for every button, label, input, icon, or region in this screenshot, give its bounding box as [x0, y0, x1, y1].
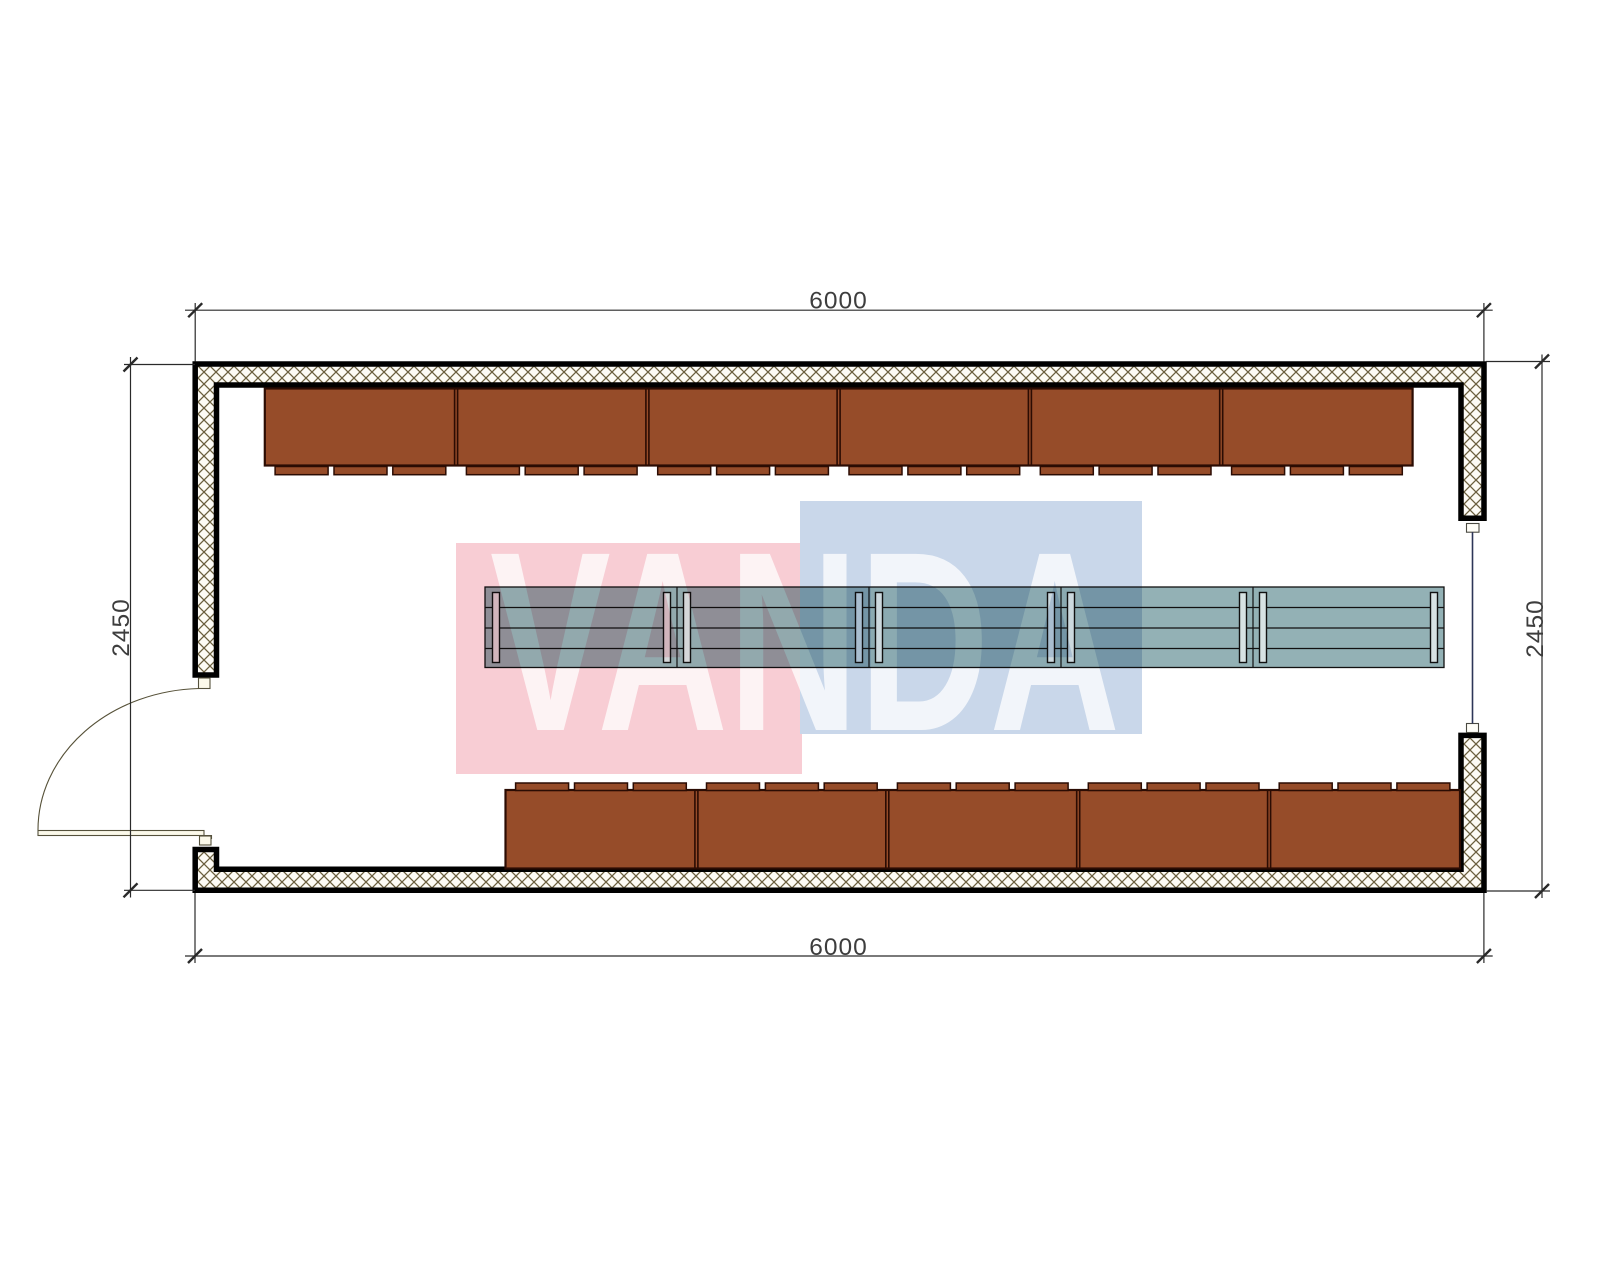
svg-text:2450: 2450: [1522, 599, 1549, 658]
svg-text:6000: 6000: [809, 934, 868, 961]
svg-text:6000: 6000: [809, 288, 868, 315]
svg-text:2450: 2450: [108, 598, 135, 657]
